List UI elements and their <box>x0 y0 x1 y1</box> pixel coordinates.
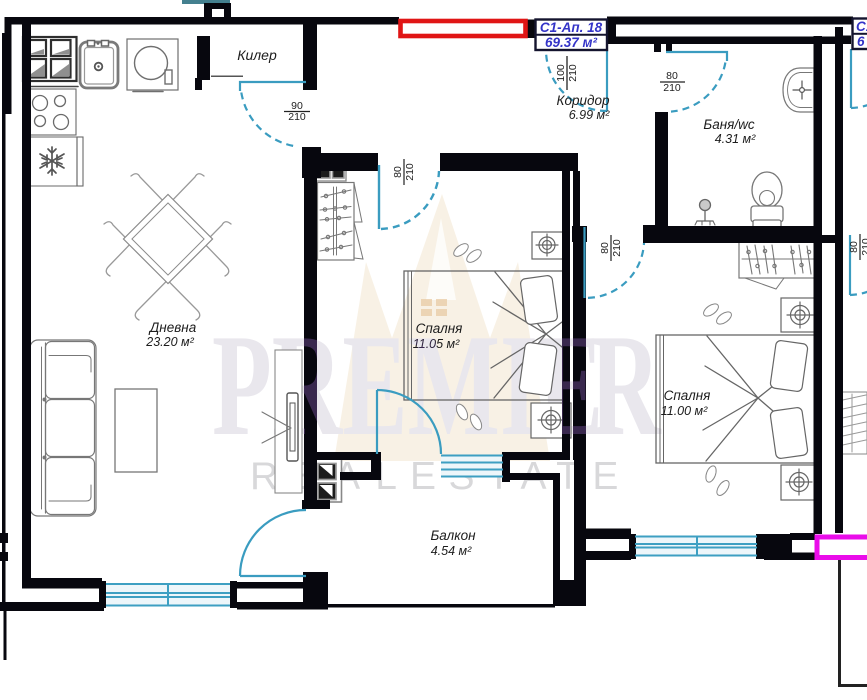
svg-text:80: 80 <box>599 242 611 254</box>
svg-text:210: 210 <box>404 163 416 181</box>
svg-text:69.37 м²: 69.37 м² <box>545 35 598 50</box>
svg-text:23.20 м²: 23.20 м² <box>145 335 194 349</box>
svg-text:Килер: Килер <box>237 47 277 63</box>
svg-text:80: 80 <box>848 241 860 253</box>
svg-text:210: 210 <box>860 238 867 256</box>
svg-text:С1-Ап. 18: С1-Ап. 18 <box>540 20 603 35</box>
svg-text:6.99 м²: 6.99 м² <box>569 108 610 122</box>
svg-text:Дневна: Дневна <box>148 320 197 335</box>
svg-text:80: 80 <box>666 70 678 82</box>
svg-text:4.54 м²: 4.54 м² <box>431 544 472 558</box>
svg-text:11.00 м²: 11.00 м² <box>661 404 708 418</box>
svg-text:Спалня: Спалня <box>664 388 711 403</box>
svg-text:210: 210 <box>567 64 579 82</box>
svg-text:Коридор: Коридор <box>557 93 610 108</box>
svg-text:Балкон: Балкон <box>430 528 476 543</box>
svg-text:С1: С1 <box>856 19 867 34</box>
svg-text:210: 210 <box>288 111 306 123</box>
svg-text:PREMIE: PREMIE <box>212 304 603 466</box>
svg-text:R: R <box>590 304 662 466</box>
svg-text:6: 6 <box>857 34 865 49</box>
svg-text:4.31 м²: 4.31 м² <box>715 132 756 146</box>
svg-text:210: 210 <box>611 239 623 257</box>
svg-text:80: 80 <box>392 166 404 178</box>
svg-text:Баня/wc: Баня/wc <box>703 117 754 132</box>
svg-text:210: 210 <box>663 82 681 94</box>
svg-text:100: 100 <box>555 64 567 82</box>
